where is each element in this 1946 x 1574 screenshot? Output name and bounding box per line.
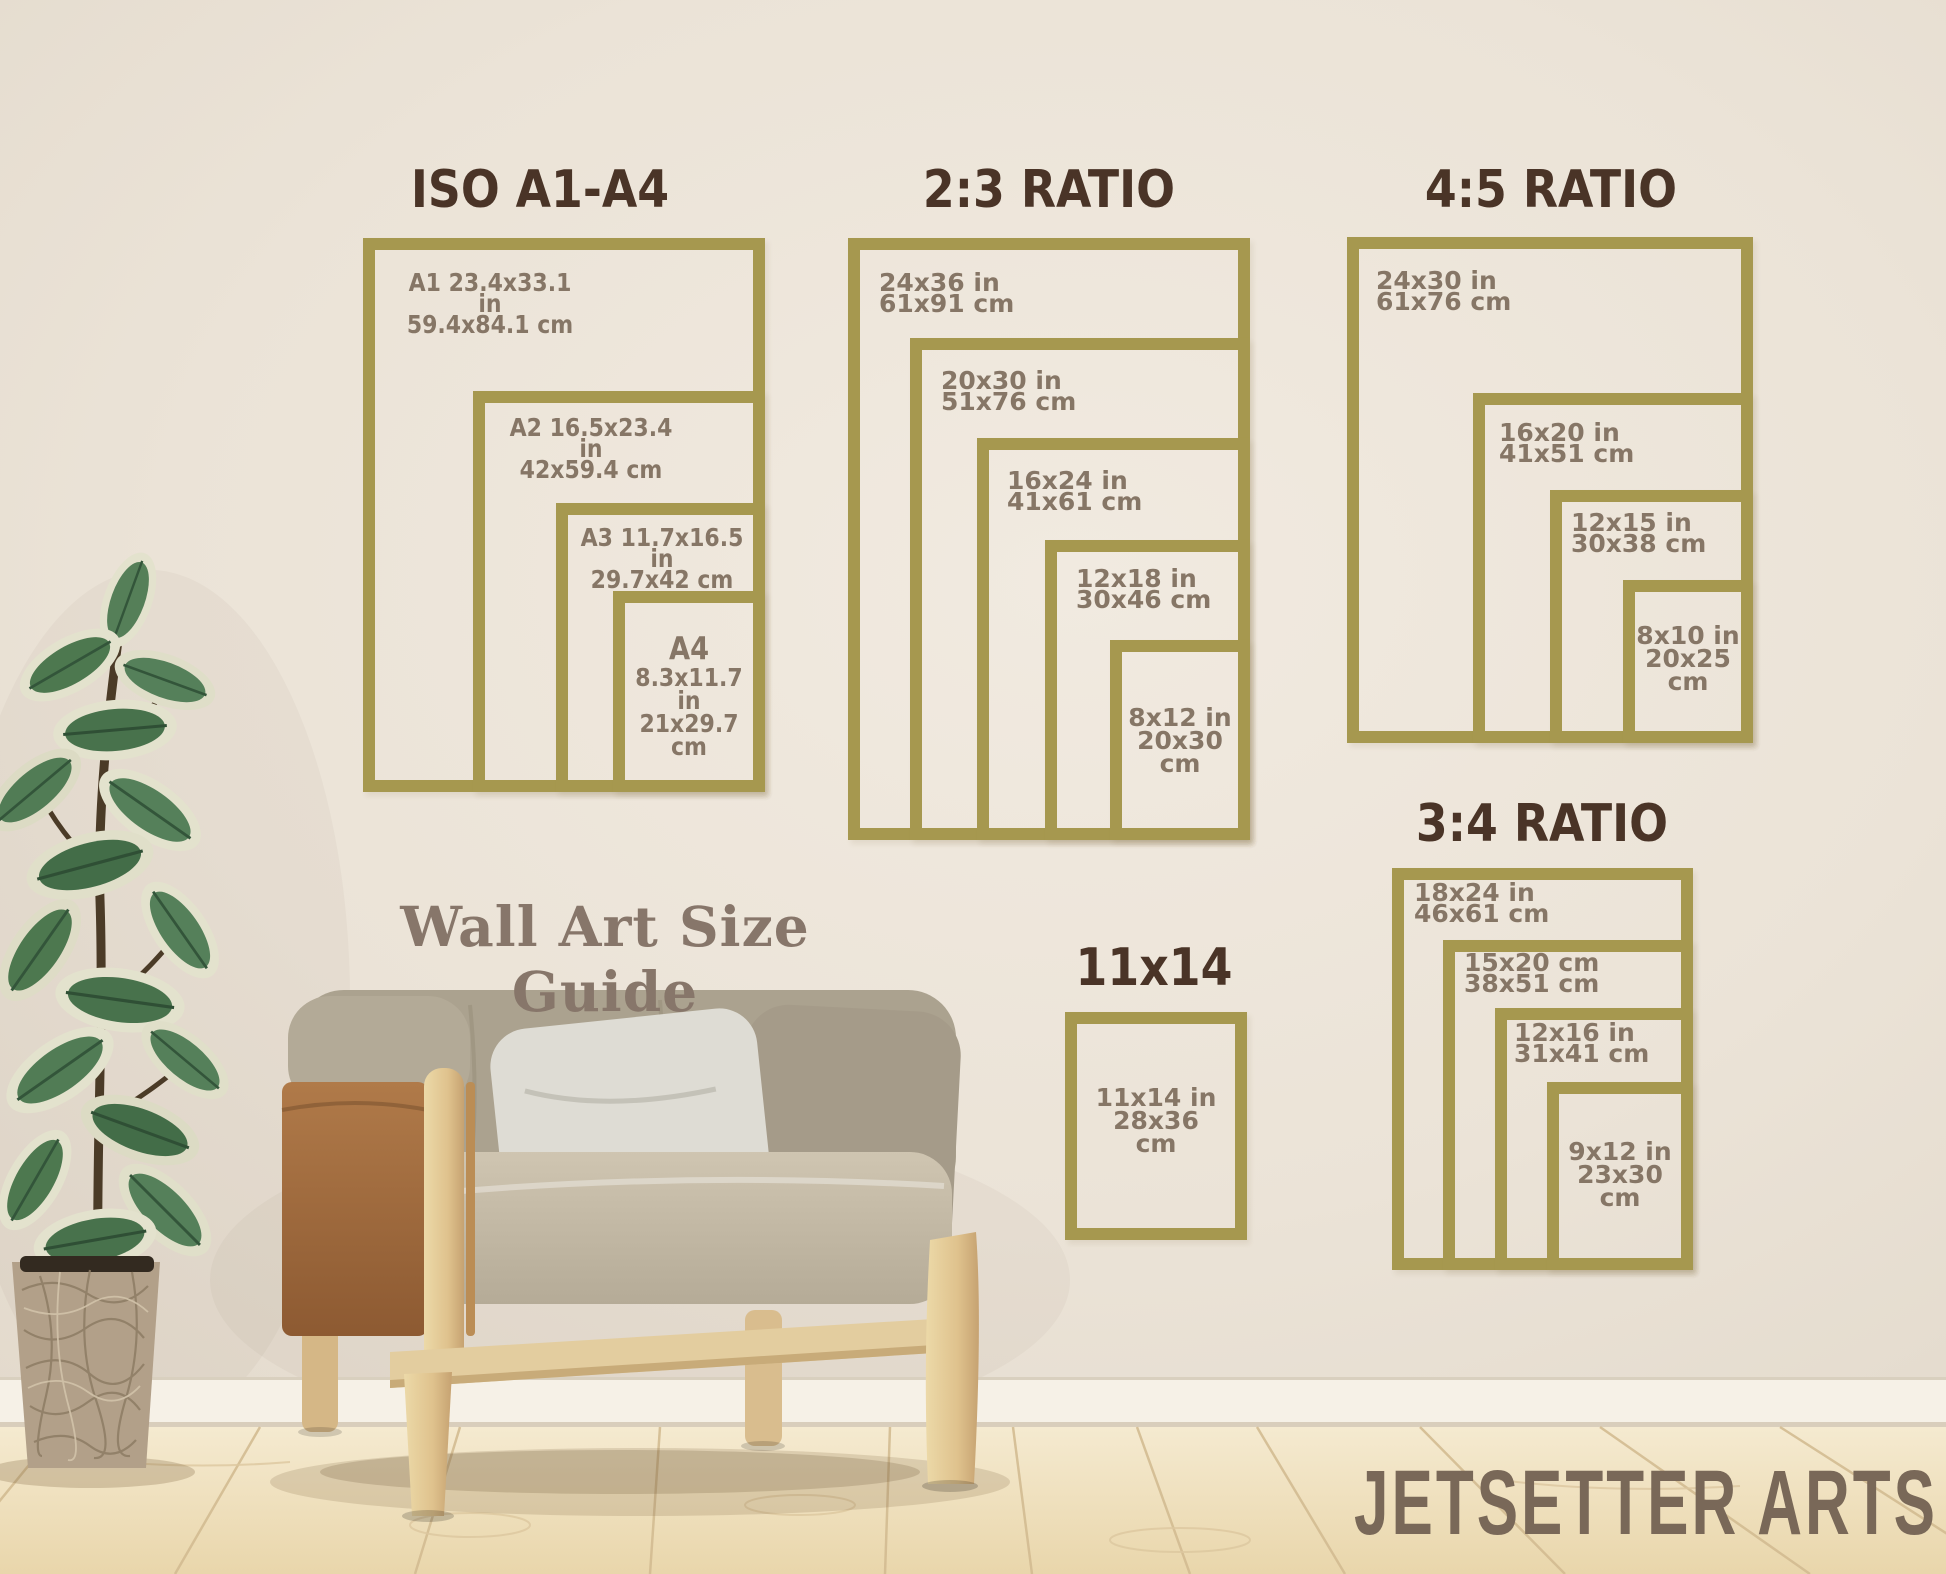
- size-line: 61x91 cm: [879, 289, 1014, 318]
- size-line: 30x38 cm: [1571, 529, 1706, 558]
- size-label-18x24: 18x24 in 46x61 cm: [1414, 882, 1549, 924]
- size-line: 8.3x11.7 in: [635, 663, 742, 715]
- size-line: 41x61 cm: [1007, 487, 1142, 516]
- panel-title-11x14: 11x14: [1022, 940, 1286, 996]
- size-line: 42x59.4 cm: [520, 455, 663, 484]
- size-line: cm: [1160, 749, 1201, 778]
- size-label-a1: A1 23.4x33.1 in 59.4x84.1 cm: [402, 272, 578, 335]
- size-line: cm: [1136, 1129, 1177, 1158]
- size-line: 41x51 cm: [1499, 439, 1634, 468]
- size-line: 46x61 cm: [1414, 899, 1549, 928]
- wall-art-size-guide-poster: ISO A1-A4 A1 23.4x33.1 in 59.4x84.1 cm A…: [0, 0, 1946, 1574]
- size-label-24x36: 24x36 in 61x91 cm: [879, 272, 1014, 314]
- size-line: 51x76 cm: [941, 387, 1076, 416]
- brand-watermark: JETSETTER ARTS: [1354, 1451, 1938, 1556]
- size-label-9x12: 9x12 in 23x30 cm: [1549, 1140, 1691, 1209]
- size-label-8x12: 8x12 in 20x30 cm: [1110, 706, 1250, 775]
- size-label-12x15: 12x15 in 30x38 cm: [1571, 512, 1706, 554]
- size-line: 61x76 cm: [1376, 287, 1511, 316]
- size-label-11x14: 11x14 in 28x36 cm: [1074, 1086, 1238, 1155]
- size-line: 59.4x84.1 cm: [407, 310, 573, 339]
- wicker-pot: [12, 1256, 160, 1468]
- size-label-16x24: 16x24 in 41x61 cm: [1007, 470, 1142, 512]
- size-label-24x30: 24x30 in 61x76 cm: [1376, 270, 1511, 312]
- size-line: 29.7x42 cm: [591, 565, 734, 594]
- size-label-a4: A4 8.3x11.7 in 21x29.7 cm: [626, 632, 753, 758]
- size-line: 31x41 cm: [1514, 1039, 1649, 1068]
- size-label-15x20: 15x20 cm 38x51 cm: [1464, 952, 1599, 994]
- size-label-20x30: 20x30 in 51x76 cm: [941, 370, 1076, 412]
- size-label-a2: A2 16.5x23.4 in 42x59.4 cm: [503, 417, 679, 480]
- size-label-12x16: 12x16 in 31x41 cm: [1514, 1022, 1649, 1064]
- size-label-16x20: 16x20 in 41x51 cm: [1499, 422, 1634, 464]
- size-line: cm: [1668, 667, 1709, 696]
- size-label-a3: A3 11.7x16.5 in 29.7x42 cm: [574, 527, 750, 590]
- size-label-12x18: 12x18 in 30x46 cm: [1076, 568, 1211, 610]
- panel-title-4-5: 4:5 RATIO: [1375, 162, 1727, 218]
- size-line: cm: [1600, 1183, 1641, 1212]
- guide-caption: Wall Art Size Guide: [325, 894, 885, 1024]
- size-label-8x10: 8x10 in 20x25 cm: [1620, 624, 1756, 693]
- size-name: A4: [626, 632, 753, 666]
- panel-title-iso: ISO A1-A4: [364, 162, 716, 218]
- size-line: 30x46 cm: [1076, 585, 1211, 614]
- size-line: 38x51 cm: [1464, 969, 1599, 998]
- panel-title-3-4: 3:4 RATIO: [1366, 796, 1718, 852]
- panel-title-2-3: 2:3 RATIO: [873, 162, 1225, 218]
- size-line: cm: [671, 732, 707, 761]
